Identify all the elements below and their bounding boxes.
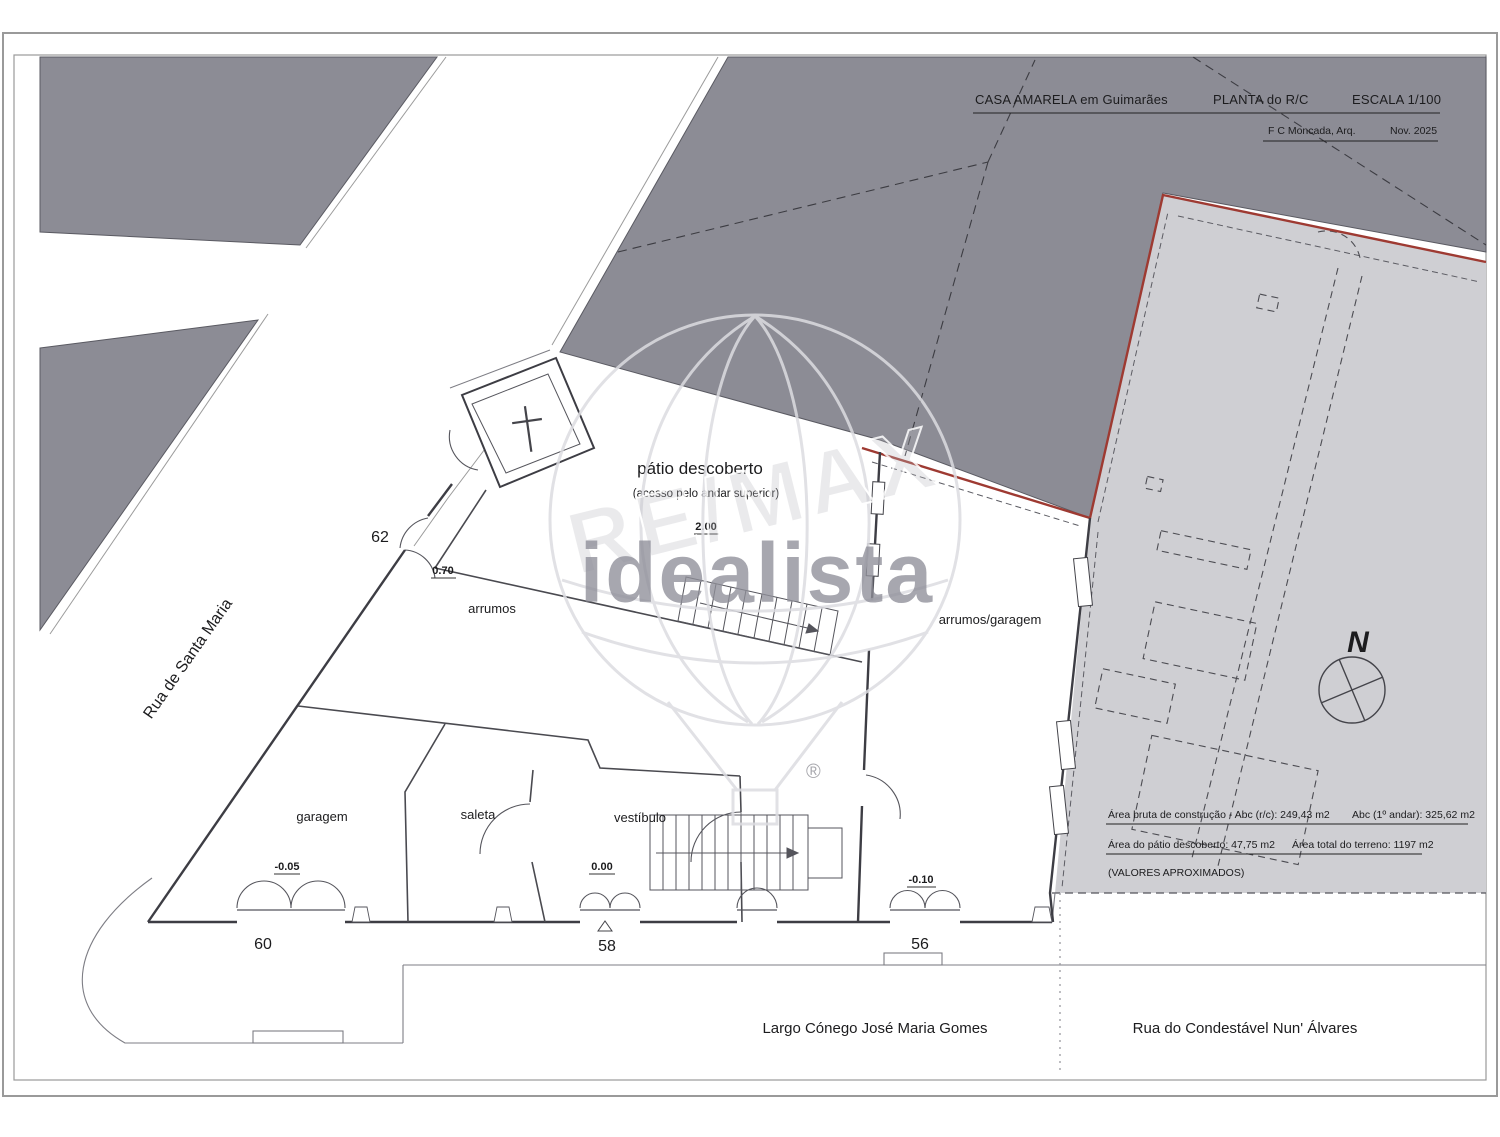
level-garagem: -0.05 — [274, 861, 299, 873]
area-line1b: Abc (1º andar): 325,62 m2 — [1352, 809, 1475, 821]
level-door62: 0.70 — [432, 565, 453, 577]
floor-plan-sheet: CASA AMARELA em Guimarães PLANTA do R/C … — [0, 0, 1500, 1137]
plan-drawing: CASA AMARELA em Guimarães PLANTA do R/C … — [0, 0, 1500, 1137]
room-label-vestibulo: vestíbulo — [614, 810, 666, 825]
balloon-basket — [733, 790, 777, 824]
door-number-62: 62 — [371, 529, 389, 546]
pavement-lines — [82, 878, 1486, 1043]
level-vestibulo: 0.00 — [591, 861, 612, 873]
north-label: N — [1347, 626, 1370, 659]
date-label: Nov. 2025 — [1390, 125, 1437, 137]
block-lower-left — [40, 320, 258, 630]
street-name-largo: Largo Cónego José Maria Gomes — [762, 1020, 987, 1037]
room-label-saleta: saleta — [461, 807, 496, 822]
room-label-arrumos-garagem: arrumos/garagem — [939, 612, 1042, 627]
area-line2b: Área total do terreno: 1197 m2 — [1292, 838, 1434, 851]
scale-label: ESCALA 1/100 — [1352, 92, 1441, 107]
entrance-marker-triangle — [598, 921, 612, 931]
thresholds — [237, 907, 1052, 922]
balloon-band — [582, 632, 928, 663]
watermark-portal: idealista — [580, 526, 934, 620]
room-label-garagem: garagem — [296, 809, 347, 824]
street-name-condestavel: Rua do Condestável Nun' Álvares — [1133, 1020, 1358, 1037]
registered-mark: ® — [806, 761, 821, 783]
door-number-56: 56 — [911, 936, 929, 953]
room-label-arrumos: arrumos — [468, 601, 516, 616]
project-title: CASA AMARELA em Guimarães — [975, 92, 1168, 107]
area-line1a: Área bruta de construção - Abc (r/c): 24… — [1108, 808, 1330, 821]
door-number-60: 60 — [254, 936, 272, 953]
chapel — [449, 350, 594, 487]
street-name-santa-maria: Rua de Santa Maria — [140, 596, 236, 722]
drawing-title: PLANTA do R/C — [1213, 92, 1309, 107]
area-note: (VALORES APROXIMADOS) — [1108, 867, 1244, 879]
level-arrumos-garagem: -0.10 — [908, 874, 933, 886]
area-line2a: Área do pátio descoberto: 47,75 m2 — [1108, 838, 1275, 851]
architect-label: F C Moncada, Arq. — [1268, 125, 1356, 137]
door-number-58: 58 — [598, 938, 616, 955]
vestibule-staircase — [650, 815, 842, 890]
